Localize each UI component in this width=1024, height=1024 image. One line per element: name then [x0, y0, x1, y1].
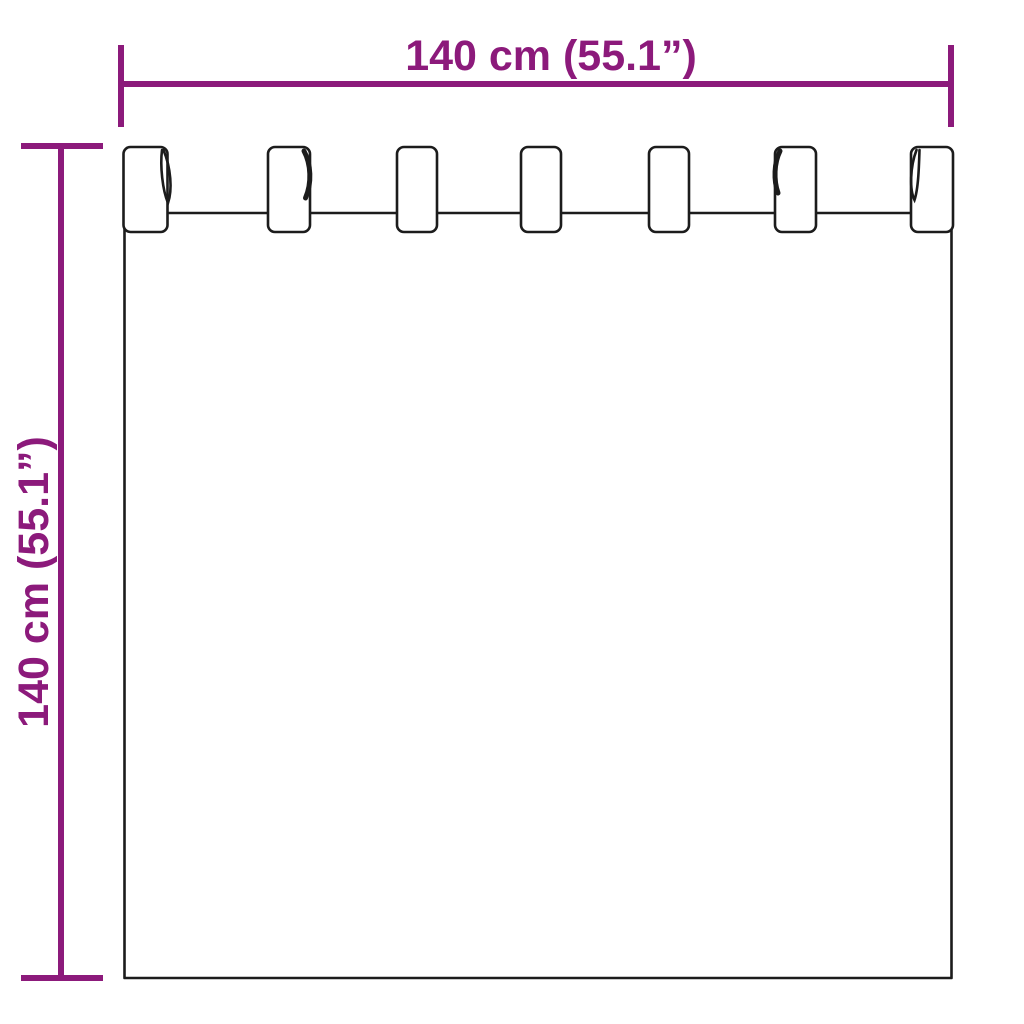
- curtain-tab-6: [775, 147, 816, 232]
- curtain-panel: [125, 213, 952, 978]
- curtain-dimension-diagram: 140 cm (55.1”) 140 cm (55.1”): [0, 0, 1024, 1024]
- curtain-drawing: [124, 147, 954, 978]
- width-dimension: 140 cm (55.1”): [121, 32, 951, 127]
- curtain-tab-4: [521, 147, 561, 232]
- height-dimension: 140 cm (55.1”): [10, 146, 103, 978]
- width-dimension-label: 140 cm (55.1”): [405, 32, 697, 80]
- curtain-tab-2: [268, 147, 310, 232]
- curtain-tab-5: [649, 147, 689, 232]
- curtain-tab-3: [397, 147, 437, 232]
- height-dimension-label: 140 cm (55.1”): [10, 436, 58, 728]
- diagram-canvas: 140 cm (55.1”) 140 cm (55.1”): [0, 0, 1024, 1024]
